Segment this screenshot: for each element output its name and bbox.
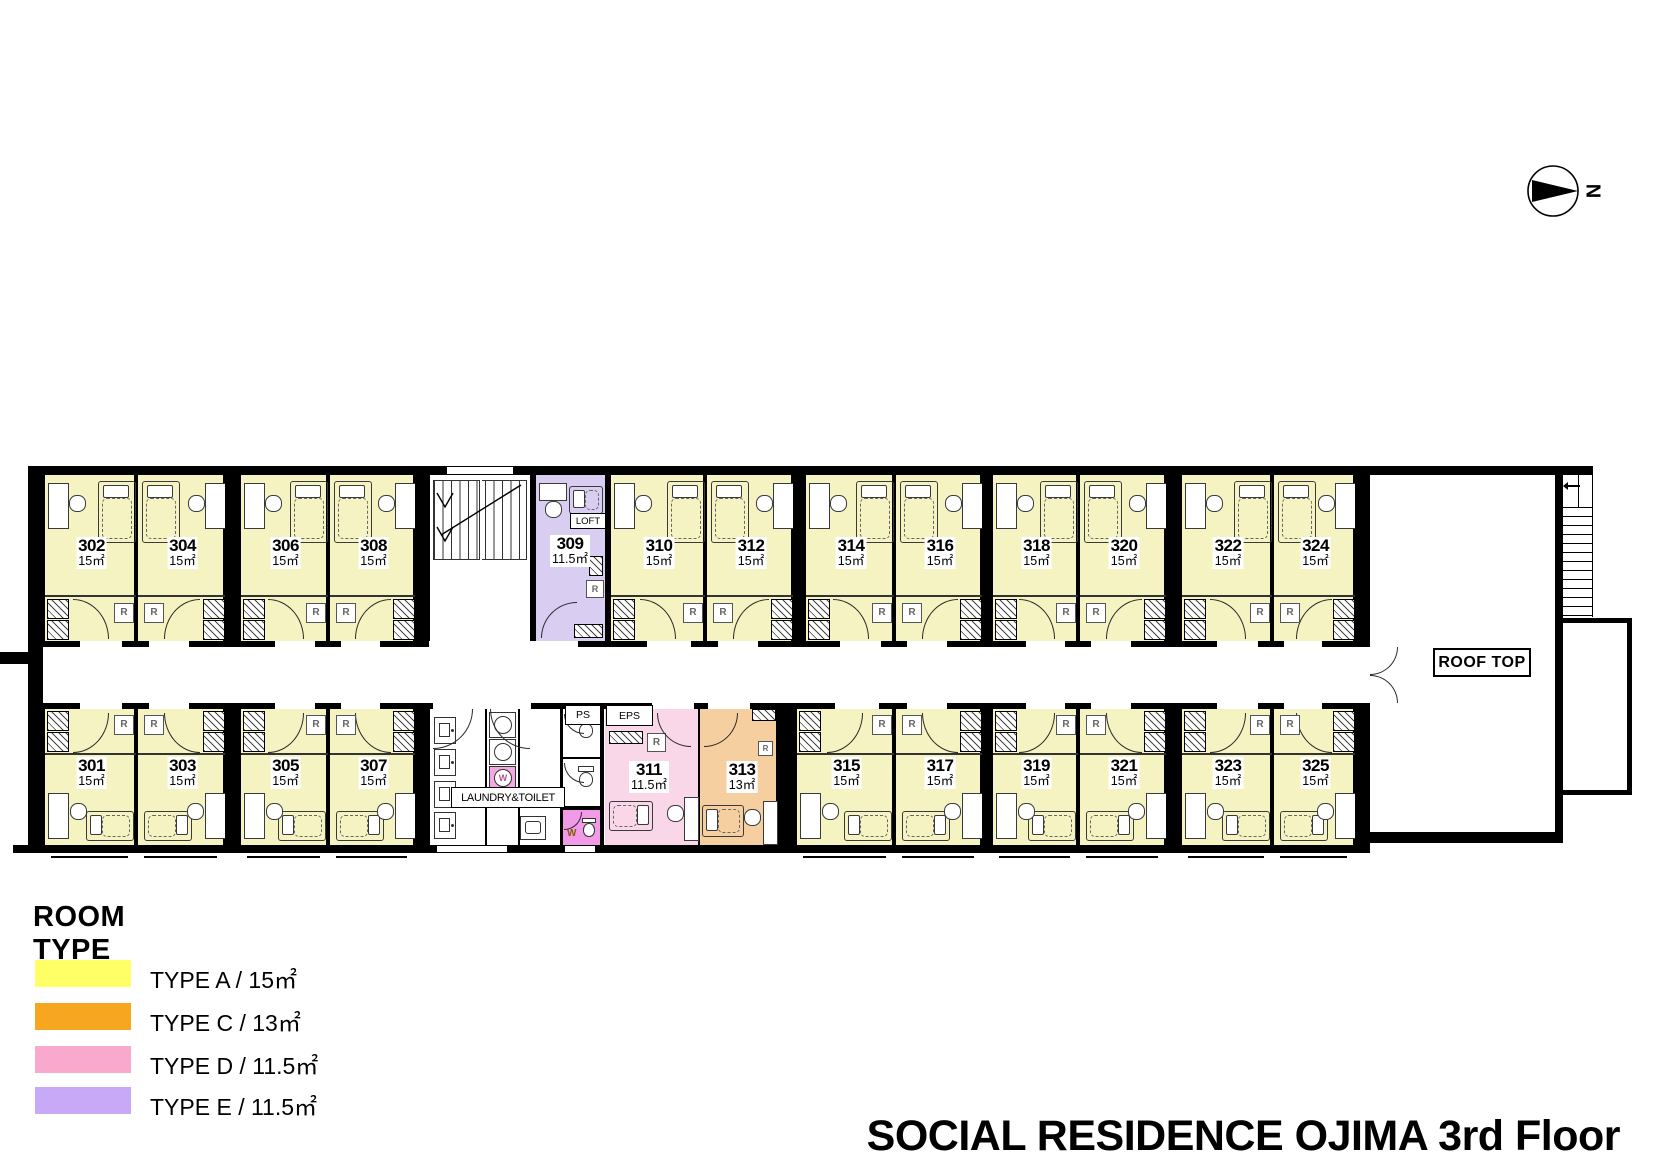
- bed-pillow: [905, 485, 931, 498]
- wall: [982, 703, 991, 845]
- bed-pillow: [1226, 815, 1238, 835]
- eave-line: [1086, 856, 1158, 858]
- corridor-door-gap: [907, 641, 947, 647]
- room-label: 32215㎡: [1213, 537, 1244, 569]
- bath-unit-hatch: [47, 599, 69, 619]
- chair: [1317, 803, 1334, 820]
- bed-pillow: [573, 490, 585, 508]
- door-arc: [922, 713, 958, 753]
- desk: [684, 797, 699, 841]
- fridge-box: R: [336, 715, 356, 735]
- room-number: 311: [631, 761, 667, 779]
- desk: [395, 793, 416, 839]
- fridge-box: R: [114, 715, 134, 735]
- room-number: 316: [927, 537, 954, 555]
- door-arc: [1296, 713, 1332, 753]
- fridge-box: R: [1250, 715, 1270, 735]
- corridor-door-gap: [341, 641, 380, 647]
- bath-unit-hatch: [47, 732, 69, 752]
- chair: [1017, 495, 1034, 512]
- page-title: SOCIAL RESIDENCE OJIMA 3rd Floor: [867, 1112, 1620, 1161]
- room-307: R30715㎡: [328, 709, 415, 845]
- bed-duvet: [904, 498, 934, 539]
- toilet-icon: [582, 818, 596, 838]
- bath-unit-hatch: [1144, 599, 1166, 619]
- room-number: 301: [78, 757, 105, 775]
- chair: [945, 495, 962, 512]
- wall: [13, 845, 1370, 853]
- bed-duvet: [294, 498, 324, 539]
- room-number: 317: [927, 757, 954, 775]
- desk: [614, 483, 635, 529]
- bed-pillow: [1118, 815, 1130, 835]
- eave-line: [51, 856, 128, 858]
- corridor-door-gap: [1217, 641, 1258, 647]
- room-317: R31715㎡: [894, 709, 982, 845]
- sink-tap: [451, 824, 454, 827]
- door-arc: [164, 713, 200, 753]
- bed: [569, 486, 603, 514]
- fridge-box: R: [306, 715, 326, 735]
- bed: [1040, 481, 1078, 543]
- corridor-door-gap: [1284, 641, 1321, 647]
- fridge-box: R: [1280, 603, 1300, 623]
- bed: [1086, 811, 1134, 841]
- corridor-door-gap: [1217, 703, 1258, 709]
- room-number: 306: [272, 537, 299, 555]
- room-area: 15㎡: [169, 555, 196, 569]
- room-314: 31415㎡R: [804, 475, 894, 641]
- corridor-door-gap: [275, 703, 315, 709]
- sink-basin: [439, 787, 450, 801]
- bed-duvet: [1284, 815, 1312, 837]
- bed-duvet: [1238, 498, 1268, 539]
- desk: [539, 483, 567, 501]
- room-number: 319: [1023, 757, 1050, 775]
- bed: [711, 481, 749, 543]
- bed-duvet: [102, 498, 132, 539]
- type-e-swatch: [35, 1087, 131, 1114]
- bed: [609, 801, 653, 831]
- fridge-box: R: [1250, 603, 1270, 623]
- wall: [1355, 703, 1370, 853]
- door-arc: [733, 599, 769, 639]
- chair: [1018, 803, 1035, 820]
- fridge-box: R: [114, 603, 134, 623]
- washer-room-label: W: [567, 828, 576, 839]
- fridge-box: R: [872, 603, 892, 623]
- bed-pillow: [637, 805, 649, 825]
- door-arc: [164, 599, 200, 639]
- wall: [1355, 466, 1370, 647]
- corridor-door-gap: [907, 703, 947, 709]
- room-label: 31515㎡: [831, 757, 862, 789]
- bath-unit-hatch: [393, 599, 415, 619]
- corridor-door-gap: [275, 641, 315, 647]
- room-area: 15㎡: [927, 555, 954, 569]
- desk: [809, 483, 830, 529]
- room-area: 15㎡: [78, 775, 105, 789]
- bed-duvet: [718, 809, 740, 833]
- bed-pillow: [716, 485, 742, 498]
- corridor-door-gap: [80, 703, 122, 709]
- bath-unit-hatch: [960, 711, 982, 731]
- room-label: 30815㎡: [358, 537, 389, 569]
- room-area: 15㎡: [1023, 555, 1050, 569]
- bed-duvet: [1238, 815, 1266, 837]
- chair: [635, 495, 652, 512]
- bed-pillow: [1283, 485, 1309, 498]
- entry-divider: [241, 753, 330, 755]
- bath-unit-hatch: [393, 711, 415, 731]
- entry-divider: [1182, 595, 1274, 597]
- fridge-box: R: [306, 603, 326, 623]
- bath-unit-hatch: [203, 620, 225, 640]
- east-roof-box: [1558, 618, 1632, 795]
- fridge-box: R: [336, 603, 356, 623]
- room-319: R31915㎡: [991, 709, 1078, 845]
- room-area: 15㎡: [1215, 775, 1242, 789]
- bed: [98, 481, 136, 543]
- bath-unit-hatch: [1144, 732, 1166, 752]
- window: [437, 845, 507, 853]
- bath-unit-hatch: [995, 732, 1017, 752]
- chair: [1129, 495, 1146, 512]
- room-label: 31215㎡: [736, 537, 767, 569]
- stairwell: [429, 475, 530, 641]
- bath-unit-hatch: [1333, 620, 1355, 640]
- room-label: 32315㎡: [1213, 757, 1244, 789]
- bed: [334, 481, 372, 543]
- bed-pillow: [1045, 485, 1071, 498]
- bath-unit-hatch: [808, 599, 830, 619]
- room-area: 15㎡: [838, 555, 865, 569]
- entry-divider: [330, 595, 417, 597]
- fridge-box: R: [713, 603, 733, 623]
- corridor-door-gap: [429, 641, 578, 647]
- entry-divider: [138, 753, 227, 755]
- room-304: 30415㎡R: [136, 475, 225, 641]
- fridge-box: R: [902, 603, 922, 623]
- bath-unit-hatch: [1144, 711, 1166, 731]
- bed-duvet: [1044, 498, 1074, 539]
- wall: [778, 703, 795, 845]
- wall: [43, 703, 1355, 709]
- type-a-swatch: [35, 960, 131, 987]
- room-label: 32115㎡: [1109, 757, 1140, 789]
- room-324: 32415㎡R: [1272, 475, 1355, 641]
- laundry-toilet-label: LAUNDRY&TOILET: [451, 787, 565, 808]
- room-label: 31111.5㎡: [629, 761, 669, 793]
- room-area: 15㎡: [169, 775, 196, 789]
- room-label: 31313㎡: [727, 761, 758, 793]
- stair-direction-arrows: [429, 475, 530, 595]
- bath-unit-hatch: [613, 599, 635, 619]
- bath-unit-hatch: [995, 620, 1017, 640]
- wall: [1166, 466, 1180, 647]
- room-area: 15㎡: [78, 555, 105, 569]
- bath-unit-hatch: [47, 711, 69, 731]
- bed-duvet: [148, 815, 176, 837]
- bed: [144, 811, 192, 841]
- bed-pillow: [1239, 485, 1265, 498]
- laundry-wall: [485, 709, 487, 845]
- bed-pillow: [103, 485, 129, 498]
- type-c-label: TYPE C / 13㎡: [150, 1004, 301, 1038]
- desk: [244, 483, 265, 529]
- wall: [563, 806, 600, 808]
- bed-pillow: [848, 815, 860, 835]
- desk: [205, 793, 226, 839]
- room-label: 30215㎡: [76, 537, 107, 569]
- bed: [844, 811, 892, 841]
- room-312: 31215㎡R: [705, 475, 793, 641]
- room-label: 31615㎡: [925, 537, 956, 569]
- wall: [0, 652, 28, 664]
- stair-divider: [1578, 475, 1579, 507]
- wall: [982, 466, 991, 647]
- room-label: 30515㎡: [270, 757, 301, 789]
- room-number: 315: [833, 757, 860, 775]
- north-compass-icon: N: [1520, 158, 1630, 224]
- corridor-door-gap: [1026, 703, 1065, 709]
- bed-duvet: [1282, 498, 1312, 539]
- legend-heading: ROOM TYPE: [33, 901, 125, 967]
- sink-tap: [451, 761, 454, 764]
- desk: [996, 483, 1017, 529]
- door-arc: [1019, 599, 1055, 639]
- bath-unit-hatch: [243, 599, 265, 619]
- room-number: 322: [1215, 537, 1242, 555]
- bed: [667, 481, 705, 543]
- bath-unit-hatch: [995, 711, 1017, 731]
- room-number: 323: [1215, 757, 1242, 775]
- door-arc: [1106, 713, 1142, 753]
- eave-line: [1280, 856, 1347, 858]
- fridge-box: R: [1056, 603, 1076, 623]
- door-arc: [1296, 599, 1332, 639]
- door-arc: [1019, 713, 1055, 753]
- bed: [856, 481, 894, 543]
- room-number: 320: [1111, 537, 1138, 555]
- chair: [377, 803, 394, 820]
- chair: [1207, 803, 1224, 820]
- door-arc: [564, 812, 582, 830]
- desk: [773, 483, 794, 529]
- bath-unit-hatch: [995, 599, 1017, 619]
- eave-line: [144, 856, 217, 858]
- fridge-box: R: [683, 603, 703, 623]
- room-number: 309: [552, 535, 588, 553]
- bed: [86, 811, 134, 841]
- room-number: 303: [169, 757, 196, 775]
- corridor-door-gap: [835, 703, 880, 709]
- bed-duvet: [1088, 498, 1118, 539]
- entry-divider: [806, 595, 896, 597]
- washer-drum: [494, 743, 512, 761]
- room-303: R30315㎡: [136, 709, 225, 845]
- eave-line: [803, 856, 886, 858]
- loft-label: LOFT: [570, 513, 606, 529]
- bed-duvet: [1044, 815, 1072, 837]
- door-arc: [433, 709, 473, 749]
- entry-divider: [993, 753, 1080, 755]
- room-number: 314: [838, 537, 865, 555]
- entry-divider: [797, 753, 896, 755]
- compass-north-letter: N: [1582, 184, 1604, 198]
- room-area: 15㎡: [272, 555, 299, 569]
- room-315: R31515㎡: [795, 709, 894, 845]
- bed: [278, 811, 326, 841]
- room-label: 31915㎡: [1021, 757, 1052, 789]
- room-label: 31715㎡: [925, 757, 956, 789]
- fridge-box: R: [647, 733, 666, 752]
- entry-divider: [1274, 595, 1357, 597]
- room-area: 15㎡: [1215, 555, 1242, 569]
- room-area: 15㎡: [738, 555, 765, 569]
- bed: [290, 481, 328, 543]
- pipe-space-label: PS: [565, 705, 601, 725]
- entry-divider: [993, 595, 1080, 597]
- desk: [205, 483, 226, 529]
- wall: [560, 703, 563, 845]
- door-arc: [73, 599, 109, 639]
- type-d-label: TYPE D / 11.5㎡: [150, 1047, 318, 1081]
- bed-duvet: [860, 498, 890, 539]
- bed-pillow: [176, 815, 188, 835]
- wall: [43, 641, 1355, 647]
- room-area: 11.5㎡: [631, 779, 667, 793]
- roof-top-label: ROOF TOP: [1433, 648, 1531, 677]
- bath-unit-hatch: [243, 732, 265, 752]
- desk: [1335, 793, 1356, 839]
- bath-unit-hatch: [243, 711, 265, 731]
- chair: [1128, 803, 1145, 820]
- eave-line: [999, 856, 1070, 858]
- chair: [69, 495, 86, 512]
- entry-divider: [1182, 753, 1274, 755]
- room-label: 30715㎡: [358, 757, 389, 789]
- desk: [244, 793, 265, 839]
- bed: [142, 481, 180, 543]
- bath-unit-hatch: [393, 620, 415, 640]
- fridge-box: R: [872, 715, 892, 735]
- fridge-box: R: [902, 715, 922, 735]
- room-311: R31111.5㎡: [605, 709, 700, 845]
- bath-unit-hatch: [1333, 599, 1355, 619]
- desk: [395, 483, 416, 529]
- room-number: 302: [78, 537, 105, 555]
- bath-unit-hatch: [1184, 620, 1206, 640]
- washer-drum: W: [494, 769, 512, 787]
- bed-pillow: [672, 485, 698, 498]
- room-number: 304: [169, 537, 196, 555]
- fridge-box: R: [1086, 603, 1106, 623]
- room-number: 325: [1302, 757, 1329, 775]
- wall: [1370, 832, 1563, 843]
- room-number: 321: [1111, 757, 1138, 775]
- bed-duvet: [102, 815, 130, 837]
- room-label: 30315㎡: [167, 757, 198, 789]
- bath-unit-hatch: [47, 620, 69, 640]
- bed-duvet: [338, 498, 368, 539]
- stair-entry-arrowhead: [1563, 482, 1568, 490]
- bath-unit-hatch: [799, 711, 821, 731]
- bath-unit-hatch: [960, 732, 982, 752]
- room-area: 15㎡: [360, 555, 387, 569]
- entry-divider: [241, 595, 330, 597]
- room-number: 324: [1302, 537, 1329, 555]
- eave-line: [1188, 856, 1264, 858]
- corridor-door-gap: [647, 641, 690, 647]
- window: [447, 466, 513, 475]
- chair: [822, 803, 839, 820]
- room-number: 307: [360, 757, 387, 775]
- desk: [763, 801, 778, 845]
- bath-unit-hatch: [1333, 732, 1355, 752]
- room-number: 318: [1023, 537, 1050, 555]
- bath-unit-hatch: [960, 599, 982, 619]
- room-area: 15㎡: [646, 555, 673, 569]
- exterior-stair: [1562, 475, 1593, 617]
- door-arc: [922, 599, 958, 639]
- chair: [944, 803, 961, 820]
- chair: [667, 805, 684, 822]
- room-area: 11.5㎡: [552, 553, 588, 567]
- bed-pillow: [295, 485, 321, 498]
- bath-unit-hatch: [589, 556, 603, 576]
- room-label: 30615㎡: [270, 537, 301, 569]
- room-label: 30115㎡: [76, 757, 107, 789]
- bath-unit-hatch: [1333, 711, 1355, 731]
- type-a-label: TYPE A / 15㎡: [150, 961, 297, 995]
- room-318: 31815㎡R: [991, 475, 1078, 641]
- bed: [1234, 481, 1272, 543]
- fridge-box: R: [758, 741, 773, 756]
- sink-icon: [434, 812, 456, 839]
- room-301: R30115㎡: [43, 709, 136, 845]
- toilet-bowl: [583, 823, 595, 837]
- stair-entry-arrow: [1567, 485, 1580, 487]
- sink-basin: [439, 818, 450, 832]
- desk: [1185, 483, 1206, 529]
- desk: [800, 793, 821, 839]
- door-arc: [1370, 675, 1398, 703]
- door-arc: [73, 713, 109, 753]
- chair: [1318, 495, 1335, 512]
- door-arc: [564, 763, 584, 783]
- entry-divider: [707, 595, 795, 597]
- corridor-door-gap: [433, 703, 531, 709]
- wall: [415, 703, 430, 845]
- room-label: 31815㎡: [1021, 537, 1052, 569]
- entry-divider: [330, 753, 417, 755]
- room-label: 31015㎡: [644, 537, 675, 569]
- bed-duvet: [146, 498, 176, 539]
- eave-line: [902, 856, 974, 858]
- bed-duvet: [585, 490, 599, 510]
- wall: [1555, 466, 1563, 843]
- door-arc: [1210, 599, 1246, 639]
- corridor-door-gap: [1091, 703, 1131, 709]
- bed-pillow: [90, 815, 102, 835]
- entry-divider: [138, 595, 227, 597]
- room-label: 32415㎡: [1300, 537, 1331, 569]
- bed-duvet: [294, 815, 322, 837]
- bath-unit-hatch: [1184, 599, 1206, 619]
- room-302: 30215㎡R: [43, 475, 136, 641]
- chair: [70, 803, 87, 820]
